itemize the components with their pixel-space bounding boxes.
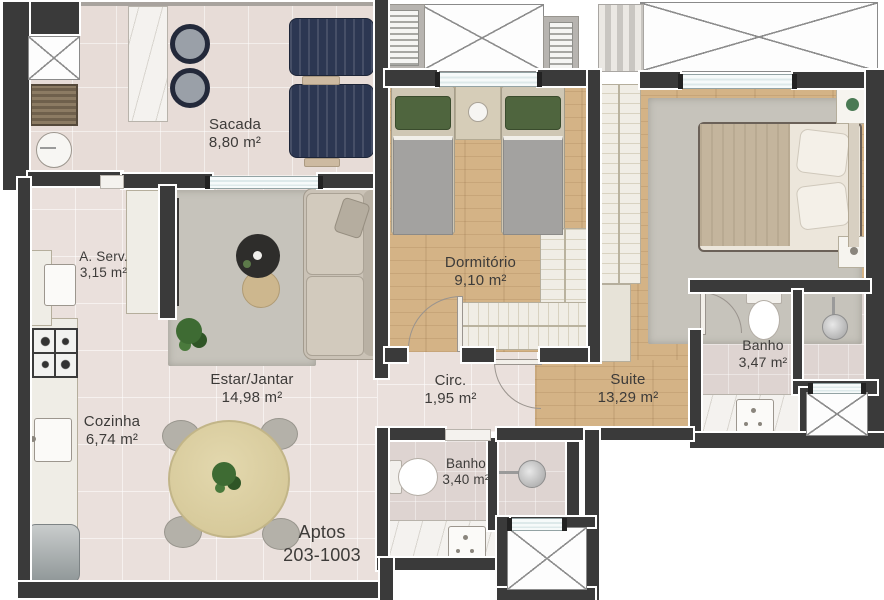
bath-sliding-door	[445, 429, 491, 441]
nightstand-plant	[846, 98, 859, 111]
apartment-numbers-label: Aptos203-1003	[262, 521, 382, 566]
bathroom-sink	[448, 526, 486, 560]
faucet-icon	[30, 436, 36, 442]
balcony-sink	[36, 132, 72, 168]
refrigerator	[26, 524, 80, 584]
pillow	[796, 128, 851, 178]
wall	[690, 280, 870, 292]
service-sliding-door	[100, 175, 124, 189]
room-label-banho-suite: Banho3,47 m²	[708, 337, 818, 371]
wall	[585, 430, 599, 600]
decor-dot	[850, 247, 858, 255]
wall	[690, 330, 701, 438]
wall	[385, 348, 407, 362]
bedroom-window	[437, 72, 540, 87]
lounge-chair	[289, 18, 374, 76]
void-x-box	[420, 4, 544, 72]
table-plant	[212, 462, 236, 486]
bar-stool	[170, 24, 210, 64]
bar-stool	[170, 68, 210, 108]
door-leaf	[494, 359, 542, 365]
floor-plan: Sacada8,80 m² A. Serv.3,15 m² Dormitório…	[0, 0, 884, 600]
door-leaf	[700, 291, 706, 335]
sofa-cushion	[306, 276, 364, 356]
room-label-cozinha: Cozinha6,74 m²	[62, 413, 162, 450]
coffee-table-decor	[253, 251, 262, 260]
faucet-icon	[463, 535, 468, 540]
faucet-icon	[40, 147, 56, 149]
faucet-icon	[758, 422, 762, 426]
facade-panel	[598, 4, 644, 72]
suite-window	[680, 74, 795, 89]
coffee-table-decor	[243, 260, 251, 268]
louver-icon	[389, 10, 419, 66]
wall	[793, 72, 870, 88]
wall	[377, 558, 499, 570]
toilet-icon	[748, 300, 780, 340]
suite-wardrobe	[597, 84, 641, 284]
faucet-icon	[751, 408, 756, 413]
wall	[588, 70, 600, 362]
headboard	[848, 123, 859, 247]
room-label-dormitorio: Dormitório9,10 m²	[398, 254, 563, 291]
faucet-icon	[456, 549, 460, 553]
pillow	[796, 181, 851, 231]
room-label-aserv: A. Serv.3,15 m²	[56, 249, 151, 282]
room-label-banho-social: Banho3,40 m²	[426, 456, 506, 489]
shaft-x-box	[28, 36, 80, 80]
wall	[375, 0, 388, 378]
wall	[160, 186, 175, 318]
floor-plant	[176, 318, 202, 344]
faucet-icon	[744, 422, 748, 426]
bathroom-sink	[736, 399, 774, 433]
wall	[3, 2, 29, 190]
room-label-suite: Suite13,29 m²	[568, 371, 688, 408]
blanket	[503, 136, 563, 235]
stove-icon	[32, 328, 78, 378]
bed-blanket	[700, 124, 790, 246]
wall	[18, 582, 393, 598]
wall	[640, 72, 680, 88]
wall	[18, 178, 30, 590]
door-leaf	[457, 296, 463, 352]
barbecue-grill	[30, 84, 78, 126]
room-label-sacada: Sacada8,80 m²	[160, 116, 310, 153]
bath-window	[810, 383, 864, 394]
sliding-glass-door	[207, 176, 321, 189]
bar-counter	[128, 6, 168, 122]
lamp-icon	[468, 102, 488, 122]
wall	[385, 70, 437, 86]
void-x-box	[640, 2, 878, 72]
elevator-x-box	[507, 527, 587, 590]
wardrobe	[458, 302, 590, 350]
pillow	[505, 96, 561, 130]
wall	[540, 348, 588, 362]
shaft-x-box	[806, 392, 868, 436]
suite-shelf	[597, 284, 631, 362]
side-table	[302, 76, 340, 85]
louver-icon	[549, 22, 573, 70]
balcony-parapet	[28, 2, 380, 6]
shower-head-icon	[518, 460, 546, 488]
room-label-circ: Circ.1,95 m²	[398, 372, 503, 409]
blanket	[393, 136, 453, 235]
pillow	[395, 96, 451, 130]
wall	[462, 348, 494, 362]
shower-head-icon	[822, 314, 848, 340]
faucet-icon	[470, 549, 474, 553]
shower-window	[509, 518, 565, 531]
room-label-estar: Estar/Jantar14,98 m²	[172, 371, 332, 408]
side-table	[304, 158, 340, 167]
